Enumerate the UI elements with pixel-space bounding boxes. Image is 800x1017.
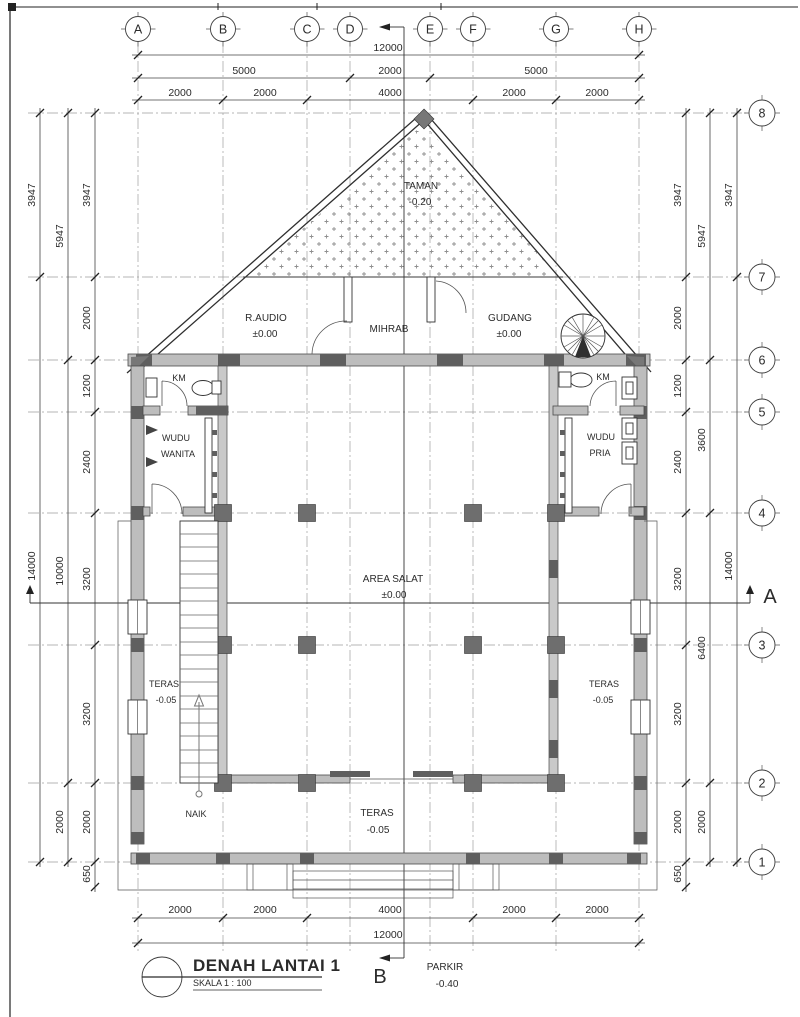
taman-garden-area [248,124,558,276]
room-label-gudang: GUDANG [488,313,532,324]
dimensions-right: 3947 2000 1200 2400 3200 3200 2000 650 5… [672,108,741,892]
level-parkir: -0.40 [436,979,459,990]
room-label-teras-right: TERAS [589,679,619,689]
svg-text:5947: 5947 [696,224,708,248]
dimensions-top: 12000 5000 2000 5000 2000 2000 4000 2000… [132,42,645,104]
svg-text:2000: 2000 [168,904,192,916]
door-arc-wudu-pria [601,484,631,514]
svg-text:3200: 3200 [672,567,684,591]
svg-text:1200: 1200 [81,374,93,398]
svg-text:5000: 5000 [232,65,256,77]
svg-text:3947: 3947 [81,183,93,207]
dim-top-total: 12000 [373,42,402,54]
section-b-arrow-bottom [379,955,390,962]
svg-text:2: 2 [759,777,766,791]
svg-text:4000: 4000 [378,87,402,99]
wall-row4-left-a [143,507,150,516]
window-left-2 [128,700,147,734]
room-label-teras-bottom: TERAS [360,808,394,819]
grid-bubble-B: B [206,12,241,47]
svg-text:2000: 2000 [585,904,609,916]
window-right-1 [631,600,650,634]
label-naik: NAIK [185,809,206,819]
door-arc-km-left [162,381,187,406]
svg-text:5: 5 [759,406,766,420]
svg-text:3947: 3947 [26,183,38,207]
door-arc-raudio [312,321,347,354]
grid-label-d: D [345,23,354,37]
room-label-raudio: R.AUDIO [245,313,287,324]
svg-text:2000: 2000 [81,306,93,330]
wudu-partition-left [205,418,217,513]
svg-text:2000: 2000 [81,810,93,834]
grid-bubble-8: 8 [744,95,780,131]
entry-steps [247,864,499,898]
sink-left [146,378,157,397]
wall-row5-left-a [143,406,160,415]
drawing-title: DENAH LANTAI 1 [193,956,340,975]
svg-text:5000: 5000 [524,65,548,77]
svg-text:2000: 2000 [253,904,277,916]
section-b-label: B [373,966,386,988]
svg-text:2000: 2000 [672,810,684,834]
wall-row1-colonnade [131,853,647,864]
grid-bubble-2: 2 [744,765,780,801]
room-label-wudu-pria-2: PRIA [589,448,610,458]
section-b-arrow-top [379,24,390,31]
title-block: DENAH LANTAI 1 SKALA 1 : 100 [142,956,340,997]
svg-text:2000: 2000 [54,810,66,834]
svg-text:3200: 3200 [672,702,684,726]
grid-bubble-7: 7 [744,259,780,295]
svg-text:2000: 2000 [253,87,277,99]
svg-text:2000: 2000 [672,306,684,330]
svg-text:8: 8 [759,107,766,121]
faucets-wanita [146,425,158,467]
door-arc-km-right [590,381,616,406]
dimensions-bottom: 2000 2000 4000 2000 2000 12000 [132,904,645,947]
grid-label-a: A [134,23,143,37]
drawing-scale: SKALA 1 : 100 [193,978,252,988]
grid-bubble-3: 3 [744,627,780,663]
stairs [180,521,218,797]
grid-label-h: H [634,23,643,37]
dimensions-left: 3947 2000 1200 2400 3200 3200 2000 650 5… [26,108,99,892]
mihrab-wall-right [427,277,435,322]
room-label-teras-left: TERAS [149,679,179,689]
room-label-km-left: KM [172,373,186,383]
grid-label-e: E [426,23,434,37]
grid-bubble-H: H [622,12,657,47]
svg-text:3947: 3947 [723,183,735,207]
svg-text:2000: 2000 [168,87,192,99]
svg-text:14000: 14000 [723,551,735,580]
room-label-taman: TAMAN [404,181,438,192]
svg-text:650: 650 [672,865,684,883]
svg-text:14000: 14000 [26,551,38,580]
row-bubbles: 8 7 6 5 4 3 2 1 [744,95,780,880]
room-level-teras-right: -0.05 [593,695,614,705]
toilet-left [192,381,221,396]
label-parkir: PARKIR [427,962,464,973]
urinals-right [622,377,637,464]
door-arc-gudang [436,281,466,313]
svg-text:3600: 3600 [696,428,708,452]
svg-text:5947: 5947 [54,224,66,248]
window-left-1 [128,600,147,634]
grid-label-f: F [469,23,477,37]
svg-text:6400: 6400 [696,636,708,660]
wudu-partition-right [560,418,572,513]
window-right-2 [631,700,650,734]
svg-text:2400: 2400 [672,450,684,474]
grid-bubble-D: D [333,12,368,47]
room-level-teras-bottom: -0.05 [367,825,390,836]
svg-text:4: 4 [759,507,766,521]
door-arc-wudu-wanita [152,484,182,514]
svg-text:3: 3 [759,639,766,653]
room-label-area-salat: AREA SALAT [363,574,423,585]
grid-bubble-C: C [290,12,325,47]
grid-bubble-6: 6 [744,342,780,378]
room-level-raudio: ±0.00 [253,329,278,340]
drawing-sheet: A B C D E F G H [0,0,800,1017]
grid-bubble-E: E [413,12,448,47]
section-a-arrow-right [746,585,754,594]
wall-row5-right-b [620,406,644,415]
section-a-arrow-left [26,585,34,594]
grid-bubble-F: F [456,12,491,47]
columns [215,505,565,792]
svg-text:1: 1 [759,856,766,870]
wall-b-line [218,366,227,783]
grid-bubble-1: 1 [744,844,780,880]
wall-row6 [128,354,650,366]
grid-label-c: C [302,23,311,37]
room-label-wudu-wanita-2: WANITA [161,449,195,459]
toilet-right [559,372,592,387]
svg-text:2000: 2000 [502,87,526,99]
dim-bottom-total: 12000 [373,929,402,941]
wall-row5-right-a [553,406,588,415]
svg-text:3200: 3200 [81,567,93,591]
room-label-mihrab: MIHRAB [370,324,409,335]
spiral-stair [561,314,605,358]
svg-text:2400: 2400 [81,450,93,474]
room-level-taman: -0.20 [409,197,432,208]
grid-bubble-A: A [121,12,156,47]
svg-text:2000: 2000 [585,87,609,99]
svg-text:4000: 4000 [378,904,402,916]
grid-bubble-G: G [539,12,574,47]
svg-text:6: 6 [759,354,766,368]
grid-bubble-4: 4 [744,495,780,531]
section-a-label: A [763,586,777,608]
room-label-wudu-wanita-1: WUDU [162,433,190,443]
svg-text:7: 7 [759,271,766,285]
room-level-gudang: ±0.00 [497,329,522,340]
room-label-km-right: KM [596,372,610,382]
room-level-area-salat: ±0.00 [382,590,407,601]
svg-text:3947: 3947 [672,183,684,207]
svg-text:2000: 2000 [502,904,526,916]
svg-text:2000: 2000 [696,810,708,834]
grid-bubble-5: 5 [744,394,780,430]
grid-label-g: G [551,23,561,37]
mihrab-wall-left [344,277,352,322]
floor-plan-svg: A B C D E F G H [0,0,800,1017]
svg-text:650: 650 [81,865,93,883]
room-label-wudu-pria-1: WUDU [587,432,615,442]
svg-text:1200: 1200 [672,374,684,398]
svg-text:10000: 10000 [54,556,66,585]
svg-text:3200: 3200 [81,702,93,726]
svg-text:2000: 2000 [378,65,402,77]
grid-label-b: B [219,23,227,37]
room-level-teras-left: -0.05 [156,695,177,705]
